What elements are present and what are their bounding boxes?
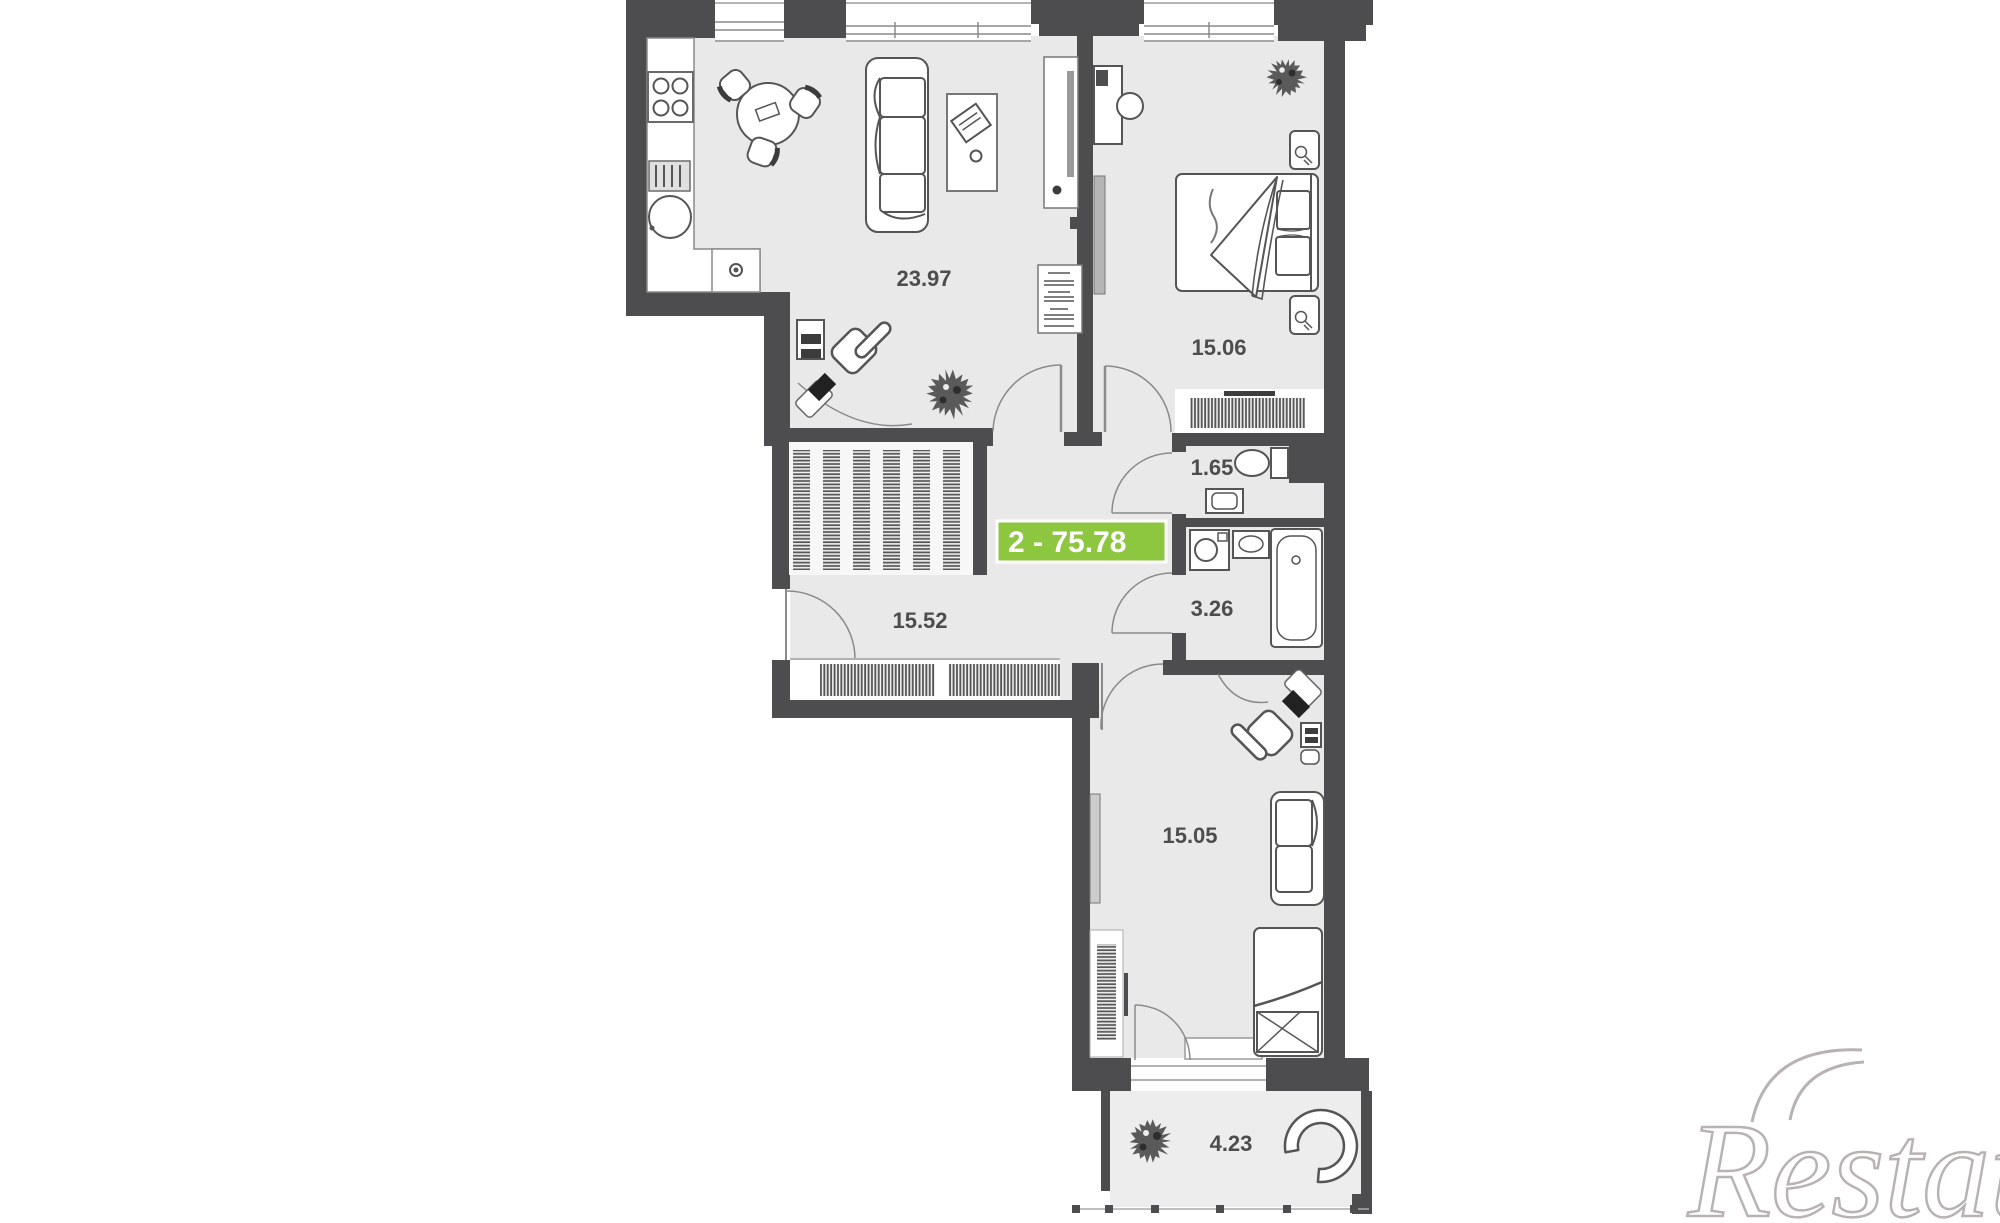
svg-text:23.97: 23.97	[896, 266, 951, 291]
svg-text:15.06: 15.06	[1191, 335, 1246, 360]
svg-text:Restate: Restate	[1687, 1096, 2000, 1223]
svg-text:3.26: 3.26	[1191, 596, 1234, 621]
svg-text:2 - 75.78: 2 - 75.78	[1008, 526, 1126, 559]
svg-text:15.52: 15.52	[892, 608, 947, 633]
svg-text:4.23: 4.23	[1210, 1131, 1253, 1156]
svg-text:15.05: 15.05	[1162, 823, 1217, 848]
svg-text:1.65: 1.65	[1191, 455, 1234, 480]
